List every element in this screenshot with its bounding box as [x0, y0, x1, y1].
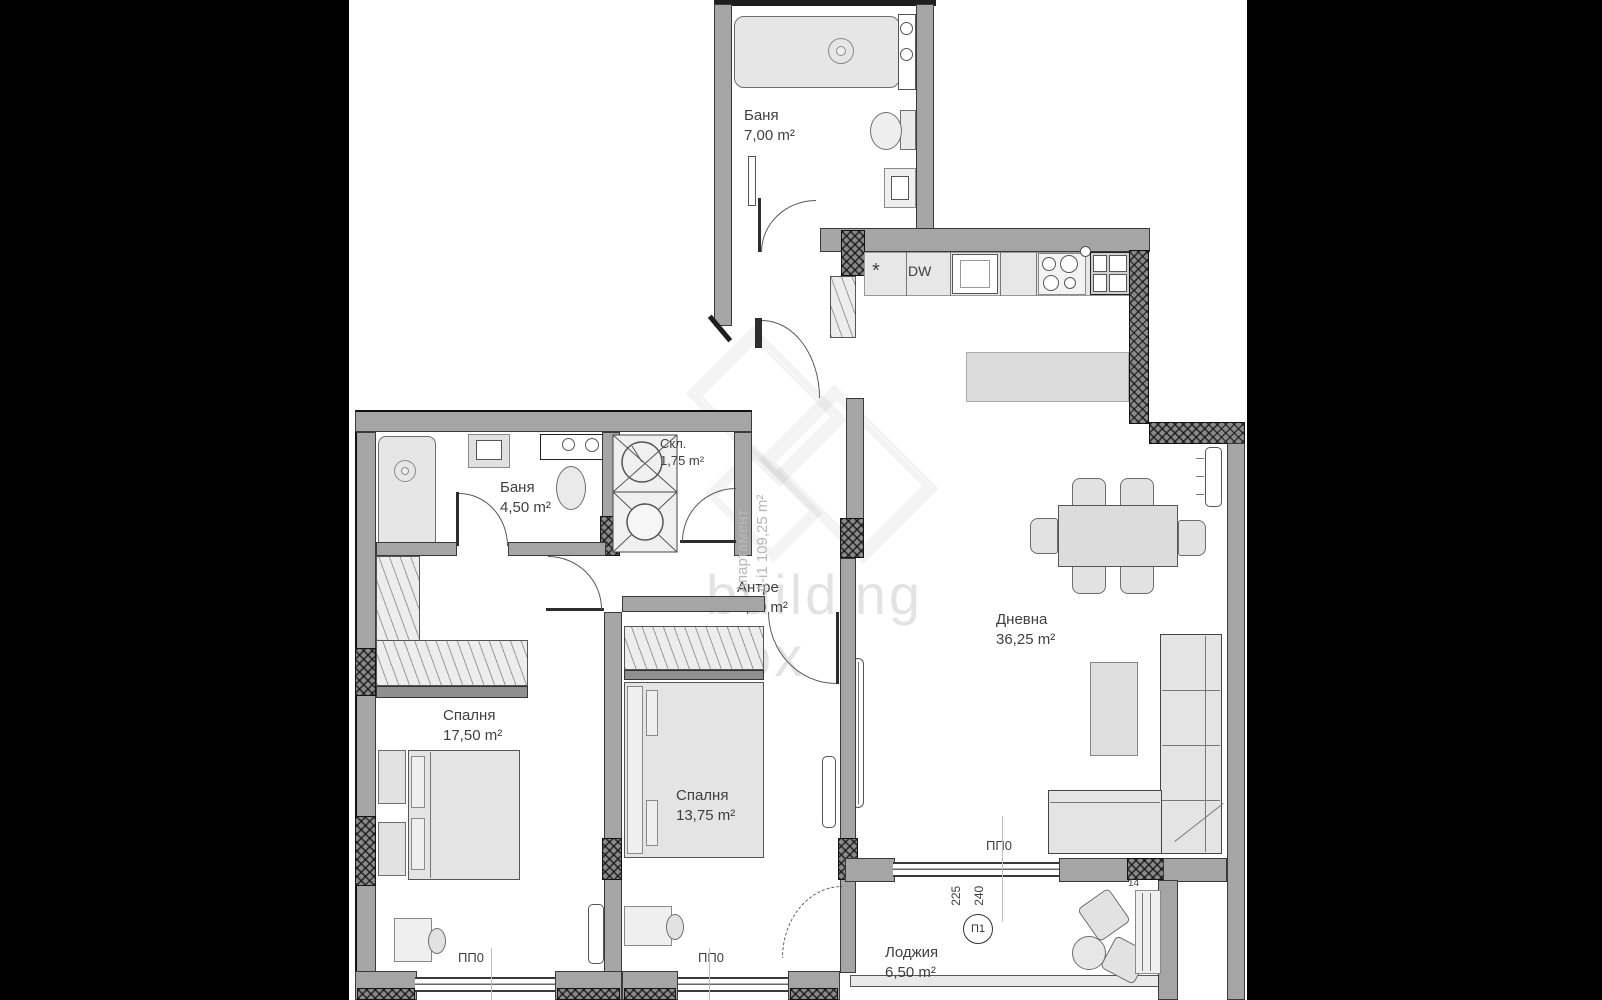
chair: [1072, 564, 1106, 594]
dining-table: [1058, 505, 1178, 567]
wardrobe: [624, 626, 764, 670]
burner-icon: [1064, 277, 1076, 289]
coffee-table: [1090, 662, 1138, 756]
desk: [624, 906, 672, 946]
window: [415, 977, 557, 992]
fridge-door: [1093, 255, 1107, 272]
room-area: 13,75 m²: [676, 806, 735, 826]
burner-icon: [1060, 255, 1078, 273]
radiator-tick: [1196, 476, 1204, 477]
wall-footing: [790, 988, 838, 1000]
basin-bowl-icon: [562, 438, 575, 451]
basin-bowl-icon: [900, 22, 913, 35]
nightstand: [378, 750, 406, 804]
radiator: [1205, 447, 1222, 507]
window-label: ПП0: [458, 950, 484, 967]
counter-divider: [1036, 252, 1037, 296]
toilet-icon: [870, 112, 902, 150]
dimension-line: [709, 948, 710, 1000]
bathtub: [378, 436, 436, 550]
apartment-title: Апартамент: [733, 403, 753, 593]
sofa: [1160, 634, 1222, 854]
fridge-door: [1109, 255, 1127, 272]
dimension-line: [1002, 816, 1003, 922]
room-name: Спалня: [443, 706, 502, 726]
door-leaf: [836, 612, 839, 684]
exterior-wall: [1129, 250, 1149, 424]
counter-divider: [906, 252, 907, 296]
pillow: [646, 800, 658, 846]
dishwasher-label: DW: [908, 262, 931, 280]
wall: [1227, 443, 1245, 1000]
radiator-tick: [1196, 458, 1204, 459]
pillow: [646, 690, 658, 736]
bathtub-drain-icon: [836, 46, 846, 56]
floor-plan-canvas: building box Баня 7,00 m² * DW: [0, 0, 1602, 1000]
wall: [846, 398, 864, 520]
wall: [622, 596, 765, 612]
window: [678, 977, 788, 992]
desk: [394, 918, 432, 962]
toilet-icon: [556, 466, 586, 510]
wall-column: [602, 838, 622, 880]
wall: [1158, 880, 1178, 1000]
wall-column: [840, 518, 864, 558]
wall-column: [841, 230, 865, 276]
apartment-info: Апартамент А-і1 109,25 m²: [733, 403, 773, 593]
wardrobe: [376, 640, 528, 686]
headboard: [627, 686, 643, 854]
window-label: ПП0: [698, 950, 724, 967]
sofa-line: [1162, 800, 1220, 801]
washbasin-bowl: [476, 440, 502, 460]
dimension-label: 14: [1128, 877, 1139, 890]
dimension-line: [491, 948, 492, 1000]
radiator-tick: [1196, 494, 1204, 495]
panel-marker: П1: [963, 914, 993, 944]
radiator: [822, 756, 836, 828]
burner-icon: [1042, 257, 1056, 271]
bed-line: [430, 752, 431, 878]
lounger-slat: [1150, 893, 1151, 971]
dimension-label: 225: [949, 862, 965, 906]
bed: [624, 682, 764, 858]
wall: [714, 4, 732, 326]
desk-chair: [428, 928, 446, 954]
entry-door-leaf: [755, 318, 762, 348]
radiator: [588, 904, 604, 964]
wall-column: [355, 816, 376, 886]
room-area: 36,25 m²: [996, 630, 1055, 650]
wall-column: [355, 648, 376, 696]
room-area: 1,75 m²: [660, 453, 704, 470]
pillow: [411, 818, 425, 870]
wall: [508, 542, 606, 556]
wardrobe-rail: [624, 670, 764, 680]
wall: [1059, 858, 1129, 882]
room-area: 7,00 m²: [744, 126, 795, 146]
burner-icon: [1043, 275, 1059, 291]
wall: [376, 542, 457, 556]
room-name: Скл.: [660, 436, 704, 453]
bathtub: [734, 16, 900, 88]
pillow: [411, 756, 425, 808]
chair: [1030, 518, 1058, 554]
shelf: [830, 276, 856, 338]
counter-divider: [950, 252, 951, 296]
window-label: ПП0: [986, 838, 1012, 855]
wall: [355, 410, 752, 432]
kitchen-sink-bowl: [960, 260, 990, 288]
chair: [1072, 478, 1106, 508]
room-name: Баня: [500, 478, 551, 498]
chair: [1178, 520, 1206, 556]
chair: [1120, 564, 1154, 594]
sofa: [1048, 790, 1162, 854]
wall: [845, 858, 895, 882]
sofa-line: [1162, 690, 1220, 691]
sofa-line: [1162, 745, 1220, 746]
sofa-line: [1205, 636, 1206, 852]
exterior-wall: [1149, 422, 1245, 444]
sofa-line: [1050, 802, 1160, 803]
room-area: 4,50 m²: [500, 498, 551, 518]
room-name: Спалня: [676, 786, 735, 806]
room-area: 17,50 m²: [443, 726, 502, 746]
shelf: [376, 556, 420, 642]
wall-footing: [557, 988, 620, 1000]
room-name: Дневна: [996, 610, 1055, 630]
chair: [1120, 478, 1154, 508]
wall-footing: [624, 988, 676, 1000]
wall: [916, 4, 934, 254]
outdoor-table: [1072, 936, 1106, 970]
room-name: Баня: [744, 106, 795, 126]
lounger: [1135, 890, 1161, 974]
bathtub-drain-icon: [401, 467, 409, 475]
lounger-slat: [1142, 893, 1143, 971]
dimension-label: 240: [972, 862, 988, 906]
fridge-door: [1109, 274, 1127, 292]
wardrobe-rail: [376, 686, 528, 698]
wall: [840, 558, 856, 973]
towel-radiator: [748, 156, 756, 206]
wall-footing: [357, 988, 415, 1000]
wall: [820, 228, 1150, 252]
desk-chair: [666, 914, 684, 940]
wall: [1163, 858, 1227, 882]
sink-icon: [891, 176, 909, 200]
gas-star-label: *: [872, 258, 880, 284]
wall: [604, 612, 622, 973]
nightstand: [378, 822, 406, 876]
apartment-area: А-і1 109,25 m²: [753, 403, 773, 593]
basin-bowl-icon: [900, 48, 913, 61]
toilet-tank: [900, 110, 916, 150]
kitchen-island: [966, 352, 1129, 402]
fridge-door: [1093, 274, 1107, 292]
counter-divider: [1000, 252, 1001, 296]
wall: [714, 0, 936, 6]
room-name: Лоджия: [885, 943, 938, 963]
room-area: 6,50 m²: [885, 963, 938, 983]
wall: [355, 432, 376, 992]
basin-bowl-icon: [585, 438, 599, 452]
radiator-line: [858, 662, 859, 804]
